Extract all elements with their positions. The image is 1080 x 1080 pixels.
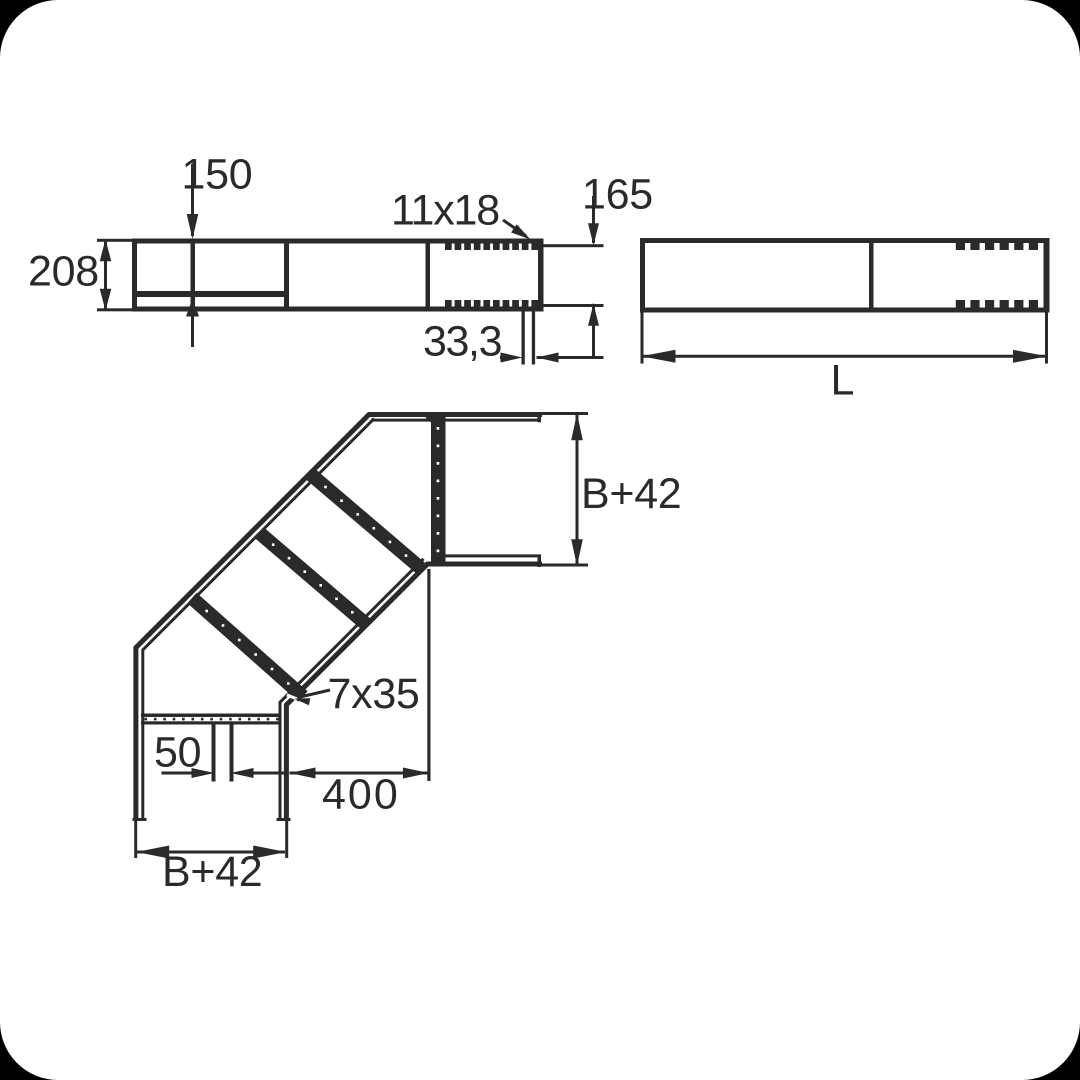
svg-text:B+42: B+42 [162,848,262,896]
svg-text:7x35: 7x35 [328,670,420,718]
svg-text:33,3: 33,3 [423,317,502,365]
svg-text:B+42: B+42 [581,470,681,518]
svg-text:150: 150 [182,150,253,198]
svg-text:400: 400 [322,771,400,819]
svg-text:208: 208 [28,247,99,295]
svg-text:L: L [831,356,855,404]
svg-text:11x18: 11x18 [391,187,499,235]
